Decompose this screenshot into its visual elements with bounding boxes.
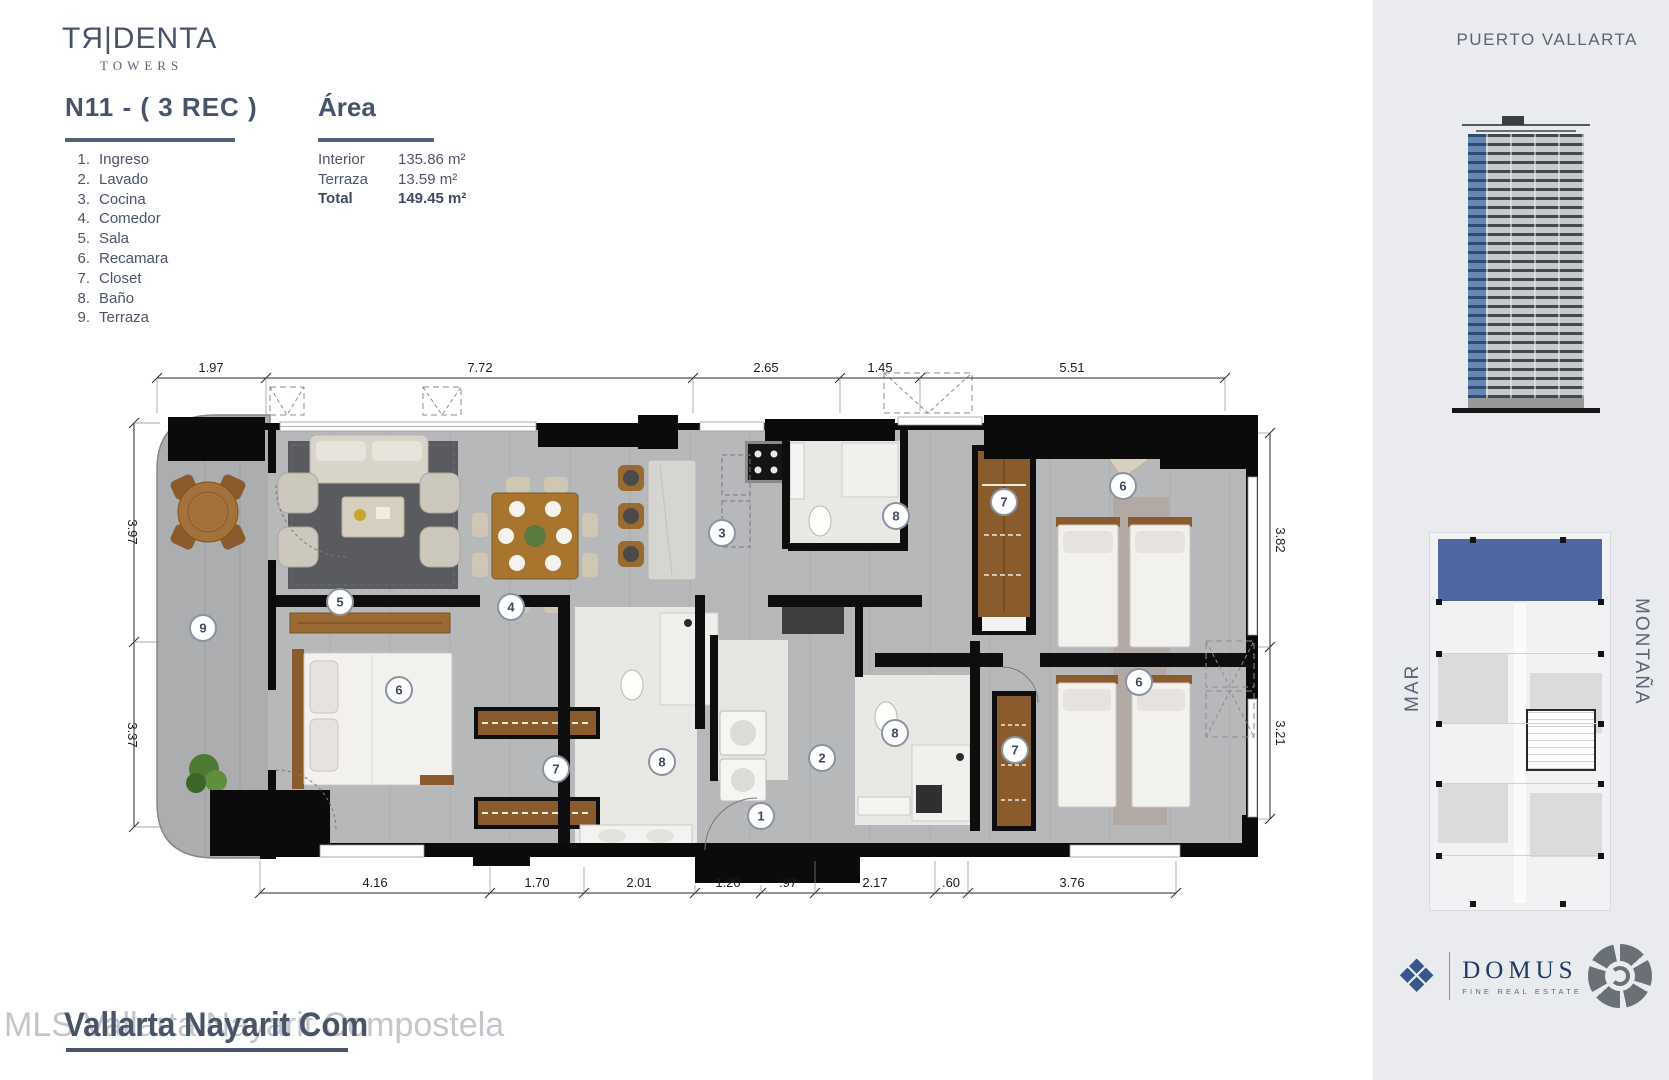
svg-text:3.97: 3.97 — [125, 519, 140, 544]
tower-blue-balconies — [1468, 134, 1486, 404]
svg-text:3.82: 3.82 — [1273, 527, 1288, 552]
svg-text:2.65: 2.65 — [753, 360, 778, 375]
tower-antenna — [1462, 124, 1590, 126]
room-marker: 1 — [748, 803, 774, 829]
watermark-rule — [66, 1048, 348, 1052]
area-row: Interior135.86 m² — [318, 150, 466, 170]
svg-text:7: 7 — [552, 762, 559, 777]
svg-text:9: 9 — [199, 621, 206, 636]
unit-title: N11 - ( 3 REC ) — [65, 92, 258, 123]
room-marker: 7 — [543, 756, 569, 782]
legend-item: 6.Recamara — [68, 249, 168, 269]
svg-text:2: 2 — [818, 751, 825, 766]
svg-text:1.97: 1.97 — [198, 360, 223, 375]
watermark-overlay: Vallarta Nayarit Com — [64, 1006, 368, 1045]
svg-text:3.76: 3.76 — [1059, 875, 1084, 890]
svg-text:3.37: 3.37 — [125, 722, 140, 747]
svg-text:3: 3 — [718, 526, 725, 541]
room-marker: 6 — [386, 677, 412, 703]
svg-text:5: 5 — [336, 595, 343, 610]
floorplan-drawing: 1.97 7.72 2.65 1.45 5.51 4.16 1.70 2.01 … — [120, 345, 1300, 910]
living-room-furniture — [278, 435, 460, 589]
area-row-total: Total149.45 m² — [318, 189, 466, 209]
svg-text:1: 1 — [757, 809, 764, 824]
svg-text:6: 6 — [395, 683, 402, 698]
svg-text:2.17: 2.17 — [862, 875, 887, 890]
legend-item: 3.Cocina — [68, 190, 168, 210]
keyplan-core — [1526, 709, 1596, 771]
legend-item: 9.Terraza — [68, 308, 168, 328]
svg-text:7.72: 7.72 — [467, 360, 492, 375]
brand-logo: TЯ|DENTA — [62, 22, 217, 56]
svg-text:5.51: 5.51 — [1059, 360, 1084, 375]
orientation-label-montana: MONTAÑA — [1630, 598, 1652, 706]
room-marker: 3 — [709, 520, 735, 546]
svg-text:4.16: 4.16 — [362, 875, 387, 890]
domus-tagline: FINE REAL ESTATE — [1462, 987, 1582, 996]
legend-item: 2.Lavado — [68, 170, 168, 190]
closet-tr — [972, 445, 1036, 635]
area-title: Área — [318, 92, 376, 123]
room-marker: 7 — [991, 489, 1017, 515]
room-marker: 8 — [882, 720, 908, 746]
area-title-rule — [318, 138, 434, 142]
room-marker: 9 — [190, 615, 216, 641]
keyplan-highlighted-unit — [1438, 539, 1602, 601]
tower-rendering — [1452, 116, 1600, 416]
legend-item: 5.Sala — [68, 229, 168, 249]
legend-item: 8.Baño — [68, 289, 168, 309]
location-label: PUERTO VALLARTA — [1373, 30, 1638, 50]
floorplan-sheet: TЯ|DENTA TOWERS N11 - ( 3 REC ) Área 1.I… — [0, 0, 1669, 1080]
svg-text:.60: .60 — [942, 875, 960, 890]
room-marker: 2 — [809, 745, 835, 771]
svg-text:8: 8 — [658, 755, 665, 770]
domus-name: DOMUS — [1462, 957, 1582, 985]
legend-item: 1.Ingreso — [68, 150, 168, 170]
svg-text:3.21: 3.21 — [1273, 720, 1288, 745]
svg-text:.97: .97 — [779, 875, 797, 890]
svg-text:6: 6 — [1119, 479, 1126, 494]
svg-text:1.45: 1.45 — [867, 360, 892, 375]
svg-text:1.20: 1.20 — [715, 875, 740, 890]
bath-top-shower — [842, 443, 898, 497]
svg-text:7: 7 — [1011, 743, 1018, 758]
keyplan — [1430, 533, 1610, 910]
orientation-label-mar: MAR — [1402, 664, 1424, 712]
legend-item: 4.Comedor — [68, 209, 168, 229]
svg-text:8: 8 — [891, 726, 898, 741]
area-row: Terraza13.59 m² — [318, 170, 466, 190]
room-marker: 7 — [1002, 737, 1028, 763]
room-marker: 4 — [498, 594, 524, 620]
room-legend: 1.Ingreso 2.Lavado 3.Cocina 4.Comedor 5.… — [68, 150, 168, 328]
room-marker: 8 — [649, 749, 675, 775]
brand-logo-sub: TOWERS — [100, 58, 183, 74]
room-marker: 5 — [327, 589, 353, 615]
svg-text:7: 7 — [1000, 495, 1007, 510]
developer-emblem-icon — [1588, 944, 1652, 1008]
svg-text:4: 4 — [507, 600, 515, 615]
svg-text:2.01: 2.01 — [626, 875, 651, 890]
domus-emblem-icon: ❖ — [1396, 953, 1437, 999]
domus-logo: ❖ DOMUS FINE REAL ESTATE — [1396, 952, 1582, 1000]
legend-item: 7.Closet — [68, 269, 168, 289]
svg-text:1.70: 1.70 — [524, 875, 549, 890]
area-table: Interior135.86 m² Terraza13.59 m² Total1… — [318, 150, 466, 209]
room-marker: 6 — [1126, 669, 1152, 695]
room-marker: 6 — [1110, 473, 1136, 499]
bedroom-br — [1056, 667, 1192, 825]
room-marker: 8 — [883, 503, 909, 529]
svg-text:8: 8 — [892, 509, 899, 524]
unit-title-rule — [65, 138, 235, 142]
svg-text:6: 6 — [1135, 675, 1142, 690]
